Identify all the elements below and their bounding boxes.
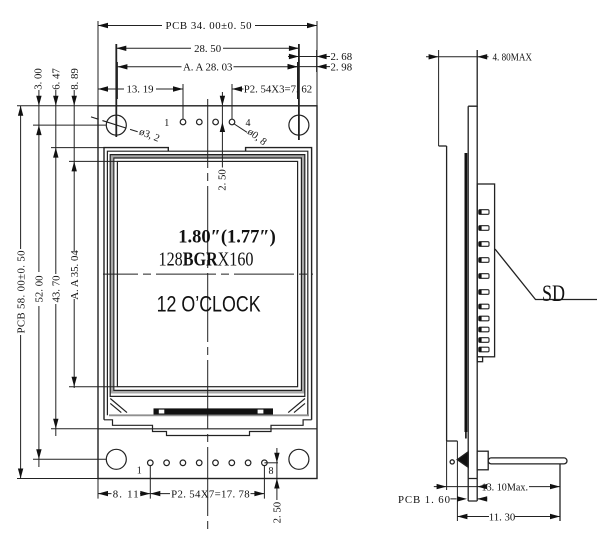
svg-text:11. 30: 11. 30 bbox=[489, 512, 516, 524]
svg-text:8. 11: 8. 11 bbox=[113, 489, 139, 501]
svg-text:8: 8 bbox=[269, 466, 274, 477]
svg-text:PCB 1. 60: PCB 1. 60 bbox=[398, 494, 450, 506]
svg-text:4. 80MAX: 4. 80MAX bbox=[493, 52, 533, 64]
svg-text:PCB 34. 00±0. 50: PCB 34. 00±0. 50 bbox=[166, 20, 252, 32]
svg-text:P2. 54X7=17. 78: P2. 54X7=17. 78 bbox=[171, 489, 250, 501]
svg-text:A. A 28. 03: A. A 28. 03 bbox=[183, 62, 233, 74]
svg-text:1.80″(1.77″): 1.80″(1.77″) bbox=[178, 226, 276, 247]
svg-text:13. 10Max.: 13. 10Max. bbox=[482, 482, 529, 494]
svg-text:43. 70: 43. 70 bbox=[51, 276, 63, 303]
svg-text:3. 00: 3. 00 bbox=[33, 68, 45, 90]
svg-text:12 O’CLOCK: 12 O’CLOCK bbox=[157, 292, 261, 317]
svg-text:P2. 54X3=7. 62: P2. 54X3=7. 62 bbox=[244, 84, 312, 96]
svg-text:1: 1 bbox=[164, 118, 169, 129]
svg-text:28. 50: 28. 50 bbox=[194, 43, 221, 55]
svg-text:1: 1 bbox=[137, 466, 142, 477]
svg-text:A. A 35. 04: A. A 35. 04 bbox=[69, 250, 81, 300]
svg-text:13. 19: 13. 19 bbox=[127, 84, 154, 96]
svg-text:SD: SD bbox=[542, 281, 565, 306]
svg-text:8. 89: 8. 89 bbox=[69, 68, 81, 90]
svg-text:2. 50: 2. 50 bbox=[216, 169, 228, 191]
svg-text:4: 4 bbox=[246, 118, 251, 129]
svg-text:6. 47: 6. 47 bbox=[51, 68, 63, 90]
svg-text:128BGRX160: 128BGRX160 bbox=[159, 248, 254, 270]
svg-text:52. 00: 52. 00 bbox=[34, 276, 46, 303]
svg-text:PCB 58. 00±0. 50: PCB 58. 00±0. 50 bbox=[15, 251, 27, 334]
svg-text:2. 50: 2. 50 bbox=[272, 502, 284, 524]
svg-text:2. 98: 2. 98 bbox=[331, 61, 353, 73]
